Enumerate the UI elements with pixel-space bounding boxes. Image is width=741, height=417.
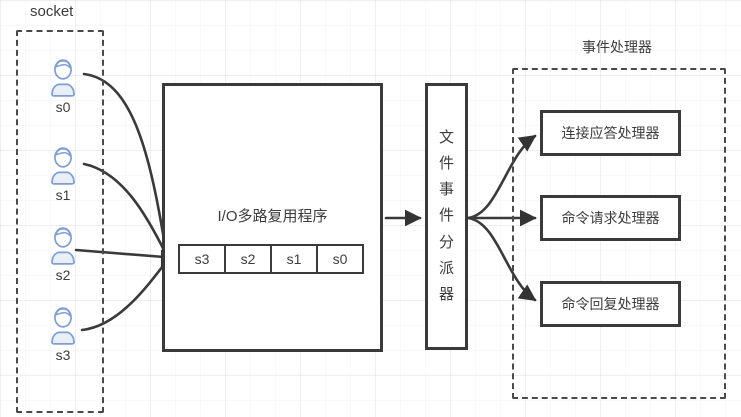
client-s0: s0 xyxy=(45,58,81,115)
queue-cell: s3 xyxy=(178,244,226,274)
queue-cell: s2 xyxy=(224,244,272,274)
client-s1: s1 xyxy=(45,146,81,203)
diagram-canvas: socket s0 s1 s2 s3 I xyxy=(0,0,741,417)
client-label: s1 xyxy=(45,187,81,203)
client-s2: s2 xyxy=(45,226,81,283)
user-icon xyxy=(46,146,80,186)
handler-connection-accept: 连接应答处理器 xyxy=(540,110,681,156)
dispatcher-label: 文件事件分派器 xyxy=(439,125,454,309)
multiplexer-label: I/O多路复用程序 xyxy=(162,205,383,226)
user-icon xyxy=(46,306,80,346)
handler-command-request: 命令请求处理器 xyxy=(540,195,681,241)
user-icon xyxy=(46,58,80,98)
handler-group-label: 事件处理器 xyxy=(512,37,722,57)
queue-cell: s1 xyxy=(270,244,318,274)
dispatcher-box: 文件事件分派器 xyxy=(425,83,468,350)
queue-cell: s0 xyxy=(316,244,364,274)
client-s3: s3 xyxy=(45,306,81,363)
client-label: s3 xyxy=(45,347,81,363)
client-label: s2 xyxy=(45,267,81,283)
socket-queue: s3 s2 s1 s0 xyxy=(178,244,364,274)
handler-command-reply: 命令回复处理器 xyxy=(540,281,681,327)
user-icon xyxy=(46,226,80,266)
client-label: s0 xyxy=(45,99,81,115)
socket-group-label: socket xyxy=(30,3,73,20)
